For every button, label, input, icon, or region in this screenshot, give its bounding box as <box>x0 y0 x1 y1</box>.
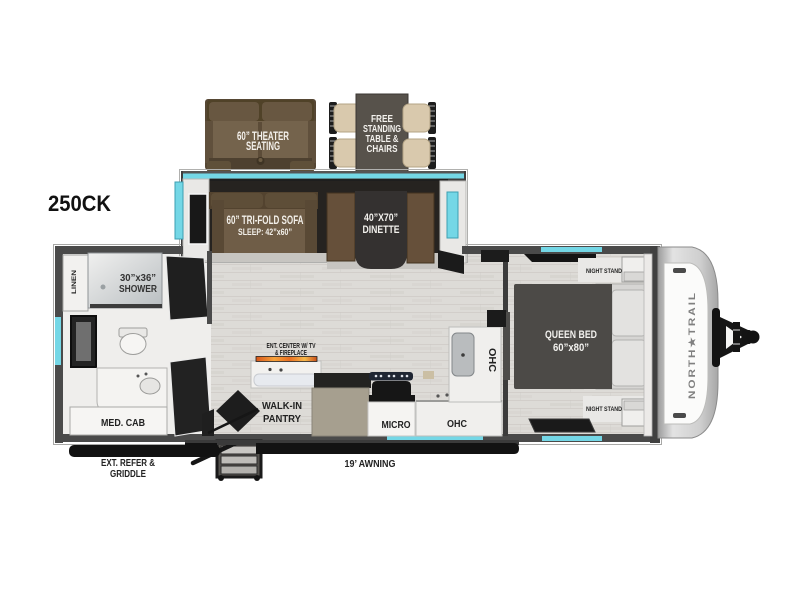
svg-text:NIGHT STAND: NIGHT STAND <box>586 406 622 413</box>
svg-text:NIGHT STAND: NIGHT STAND <box>586 268 622 275</box>
svg-text:60” TRI-FOLD SOFA: 60” TRI-FOLD SOFA <box>227 215 304 227</box>
svg-text:PANTRY: PANTRY <box>263 414 301 425</box>
svg-text:CHAIRS: CHAIRS <box>367 144 398 155</box>
svg-text:& FIREPLACE: & FIREPLACE <box>275 348 307 357</box>
svg-text:SHOWER: SHOWER <box>119 283 157 295</box>
svg-text:DINETTE: DINETTE <box>363 224 400 236</box>
svg-text:WALK-IN: WALK-IN <box>262 401 302 412</box>
svg-text:60”x80”: 60”x80” <box>553 342 589 354</box>
svg-text:SLEEP: 42”x60”: SLEEP: 42”x60” <box>238 227 292 238</box>
svg-text:19’ AWNING: 19’ AWNING <box>345 459 396 470</box>
svg-text:GRIDDLE: GRIDDLE <box>110 469 146 480</box>
svg-text:MICRO: MICRO <box>382 419 411 431</box>
svg-text:40”X70”: 40”X70” <box>364 212 398 224</box>
svg-text:OHC: OHC <box>486 348 498 372</box>
svg-text:LINEN: LINEN <box>71 270 78 294</box>
svg-text:EXT. REFER &: EXT. REFER & <box>101 458 155 469</box>
svg-text:SEATING: SEATING <box>246 141 280 153</box>
svg-text:250CK: 250CK <box>48 191 111 216</box>
svg-text:OHC: OHC <box>447 418 467 430</box>
svg-text:MED. CAB: MED. CAB <box>101 417 145 429</box>
svg-text:NORTH★TRAIL: NORTH★TRAIL <box>687 291 697 399</box>
svg-text:QUEEN BED: QUEEN BED <box>545 329 597 341</box>
